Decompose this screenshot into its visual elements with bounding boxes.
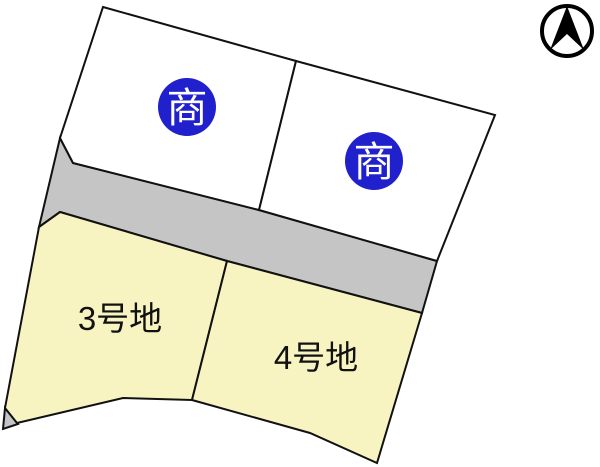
status-badge-label: 商 — [354, 139, 395, 185]
lot3-label: 3号地 — [78, 300, 162, 337]
north-arrow-icon — [542, 6, 592, 56]
status-badge-upper-right: 商 — [345, 132, 403, 190]
lot-map-canvas: 商 商 3号地 4号地 — [0, 0, 600, 467]
lot-map-svg: 商 商 3号地 4号地 — [0, 0, 600, 467]
lot4-label: 4号地 — [274, 339, 358, 376]
status-badge-upper-left: 商 — [158, 78, 216, 136]
status-badge-label: 商 — [167, 85, 208, 131]
